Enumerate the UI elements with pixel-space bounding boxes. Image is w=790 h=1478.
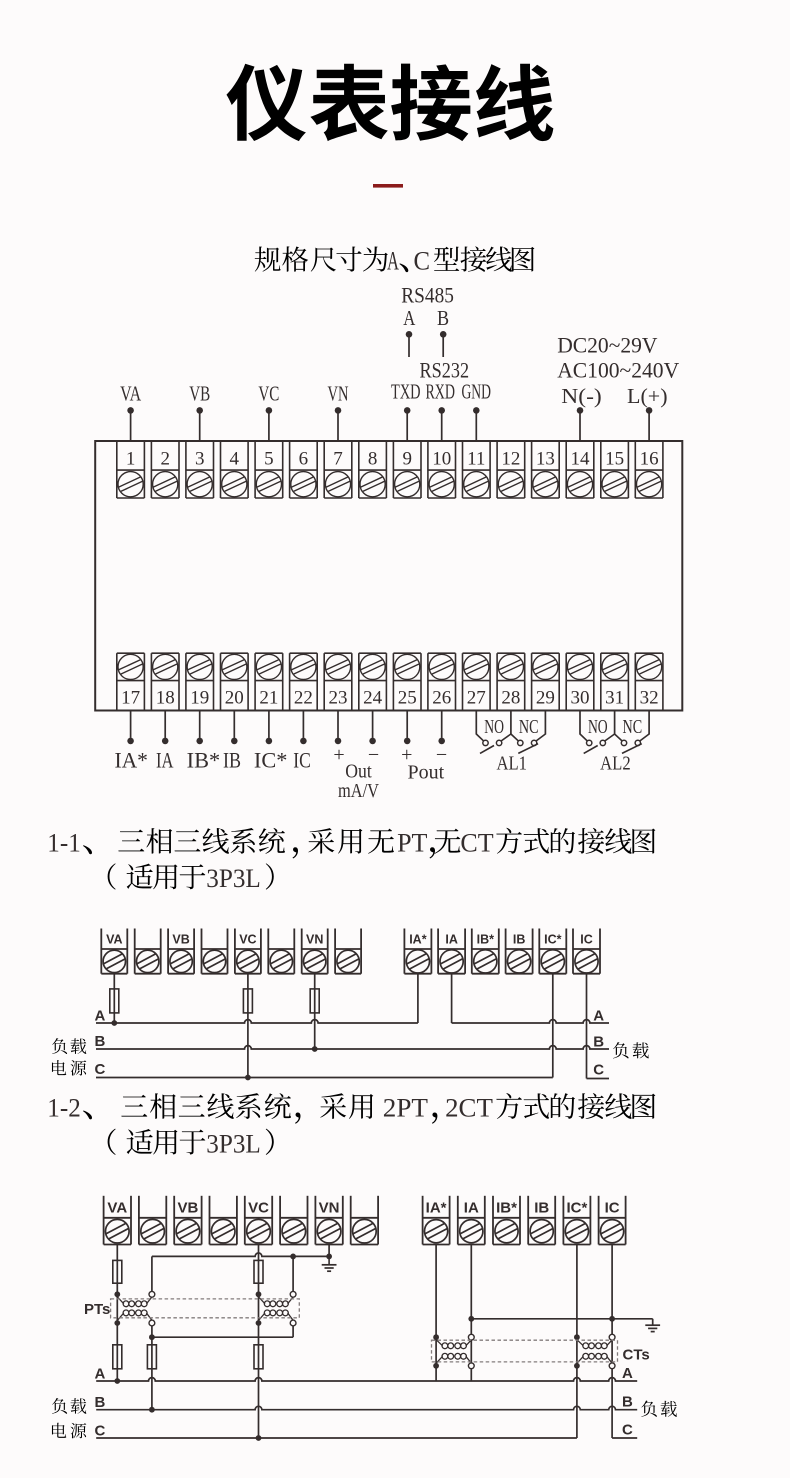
svg-text:28: 28 bbox=[501, 688, 520, 709]
svg-text:GND: GND bbox=[461, 380, 491, 404]
svg-text:VA: VA bbox=[106, 933, 122, 947]
svg-text:IC: IC bbox=[605, 1199, 620, 1216]
svg-text:6: 6 bbox=[299, 449, 309, 470]
svg-text:3: 3 bbox=[195, 449, 205, 470]
svg-text:AL1: AL1 bbox=[496, 753, 527, 775]
svg-text:23: 23 bbox=[329, 688, 348, 709]
svg-text:24: 24 bbox=[363, 688, 383, 709]
svg-text:27: 27 bbox=[467, 688, 486, 709]
svg-text:10: 10 bbox=[432, 449, 451, 470]
svg-text:26: 26 bbox=[432, 688, 451, 709]
svg-text:VN: VN bbox=[328, 382, 349, 406]
svg-text:CTs: CTs bbox=[623, 1347, 650, 1364]
svg-text:C: C bbox=[95, 1061, 106, 1078]
svg-text:B: B bbox=[95, 1033, 106, 1050]
svg-text:IC: IC bbox=[293, 748, 311, 773]
svg-text:IA*: IA* bbox=[409, 933, 427, 947]
svg-text:+: + bbox=[333, 744, 344, 766]
svg-text:29: 29 bbox=[536, 688, 555, 709]
svg-text:7: 7 bbox=[333, 449, 343, 470]
svg-text:IA*: IA* bbox=[114, 748, 148, 773]
svg-text:RS232: RS232 bbox=[420, 357, 470, 382]
svg-text:2: 2 bbox=[160, 449, 170, 470]
svg-text:VN: VN bbox=[319, 1199, 340, 1216]
svg-text:IB: IB bbox=[513, 933, 526, 947]
svg-text:15: 15 bbox=[605, 449, 624, 470]
svg-text:22: 22 bbox=[294, 688, 313, 709]
svg-text:4: 4 bbox=[230, 449, 240, 470]
svg-text:IA: IA bbox=[445, 933, 458, 947]
svg-text:C: C bbox=[593, 1062, 604, 1079]
svg-text:30: 30 bbox=[571, 688, 590, 709]
svg-text:IB*: IB* bbox=[477, 933, 495, 947]
svg-text:IC*: IC* bbox=[566, 1199, 587, 1216]
svg-text:NO: NO bbox=[484, 716, 504, 738]
svg-text:PT: PT bbox=[397, 829, 427, 858]
svg-text:NO: NO bbox=[588, 716, 608, 738]
svg-text:14: 14 bbox=[571, 449, 591, 470]
svg-text:L(+): L(+) bbox=[627, 384, 668, 408]
svg-text:RS485: RS485 bbox=[401, 283, 454, 308]
svg-text:VB: VB bbox=[177, 1199, 198, 1216]
svg-text:1-2: 1-2 bbox=[47, 1094, 81, 1123]
svg-text:IC*: IC* bbox=[254, 748, 288, 773]
svg-text:IA: IA bbox=[156, 748, 174, 773]
svg-text:A: A bbox=[95, 1008, 106, 1025]
svg-text:3P3L: 3P3L bbox=[206, 1129, 260, 1158]
svg-text:C: C bbox=[622, 1422, 633, 1439]
svg-text:DC20~29V: DC20~29V bbox=[557, 332, 657, 357]
svg-text:VC: VC bbox=[239, 933, 256, 947]
svg-text:A: A bbox=[387, 247, 399, 276]
svg-text:16: 16 bbox=[640, 449, 659, 470]
svg-text:mA/V: mA/V bbox=[338, 780, 379, 802]
svg-text:CT: CT bbox=[460, 829, 493, 858]
svg-text:PTs: PTs bbox=[84, 1301, 110, 1318]
svg-text:IA*: IA* bbox=[426, 1199, 447, 1216]
svg-text:32: 32 bbox=[640, 688, 659, 709]
svg-text:1-1: 1-1 bbox=[47, 829, 81, 858]
svg-text:C: C bbox=[95, 1423, 106, 1440]
svg-text:2CT: 2CT bbox=[445, 1094, 493, 1123]
svg-text:IC: IC bbox=[580, 933, 593, 947]
svg-text:IA: IA bbox=[464, 1199, 479, 1216]
svg-text:VN: VN bbox=[306, 933, 323, 947]
svg-text:IC*: IC* bbox=[544, 933, 562, 947]
svg-text:C: C bbox=[414, 247, 431, 276]
svg-text:AL2: AL2 bbox=[600, 753, 631, 775]
svg-text:5: 5 bbox=[264, 449, 274, 470]
svg-text:2PT: 2PT bbox=[383, 1094, 428, 1123]
svg-text:25: 25 bbox=[398, 688, 417, 709]
svg-text:IB: IB bbox=[223, 748, 241, 773]
svg-text:19: 19 bbox=[190, 688, 209, 709]
svg-text:11: 11 bbox=[467, 449, 485, 470]
svg-text:NC: NC bbox=[623, 716, 643, 738]
svg-text:VC: VC bbox=[258, 382, 279, 406]
svg-text:VA: VA bbox=[120, 382, 142, 406]
svg-text:20: 20 bbox=[225, 688, 244, 709]
svg-text:VB: VB bbox=[172, 933, 189, 947]
svg-text:13: 13 bbox=[536, 449, 555, 470]
svg-text:31: 31 bbox=[605, 688, 624, 709]
svg-text:TXD: TXD bbox=[391, 380, 421, 404]
svg-text:A: A bbox=[593, 1008, 604, 1025]
svg-text:B: B bbox=[593, 1034, 604, 1051]
svg-text:Pout: Pout bbox=[407, 762, 444, 784]
svg-text:B: B bbox=[437, 306, 449, 330]
svg-text:21: 21 bbox=[259, 688, 278, 709]
svg-text:A: A bbox=[403, 306, 416, 330]
svg-text:18: 18 bbox=[156, 688, 175, 709]
svg-text:B: B bbox=[95, 1394, 106, 1411]
svg-text:AC100~240V: AC100~240V bbox=[557, 358, 679, 383]
svg-text:IB: IB bbox=[534, 1199, 549, 1216]
svg-text:RXD: RXD bbox=[425, 380, 455, 404]
svg-text:8: 8 bbox=[368, 449, 378, 470]
svg-text:NC: NC bbox=[519, 716, 539, 738]
svg-text:1: 1 bbox=[126, 449, 136, 470]
svg-text:12: 12 bbox=[501, 449, 520, 470]
svg-text:VB: VB bbox=[189, 382, 210, 406]
svg-text:3P3L: 3P3L bbox=[206, 864, 260, 893]
svg-text:B: B bbox=[622, 1394, 633, 1411]
svg-text:N(-): N(-) bbox=[561, 384, 602, 408]
svg-text:17: 17 bbox=[121, 688, 140, 709]
svg-text:9: 9 bbox=[402, 449, 412, 470]
svg-text:VC: VC bbox=[248, 1199, 269, 1216]
svg-text:A: A bbox=[622, 1365, 633, 1382]
svg-text:A: A bbox=[95, 1366, 106, 1383]
svg-text:IB*: IB* bbox=[496, 1199, 517, 1216]
svg-text:VA: VA bbox=[107, 1199, 127, 1216]
svg-text:IB*: IB* bbox=[187, 748, 221, 773]
